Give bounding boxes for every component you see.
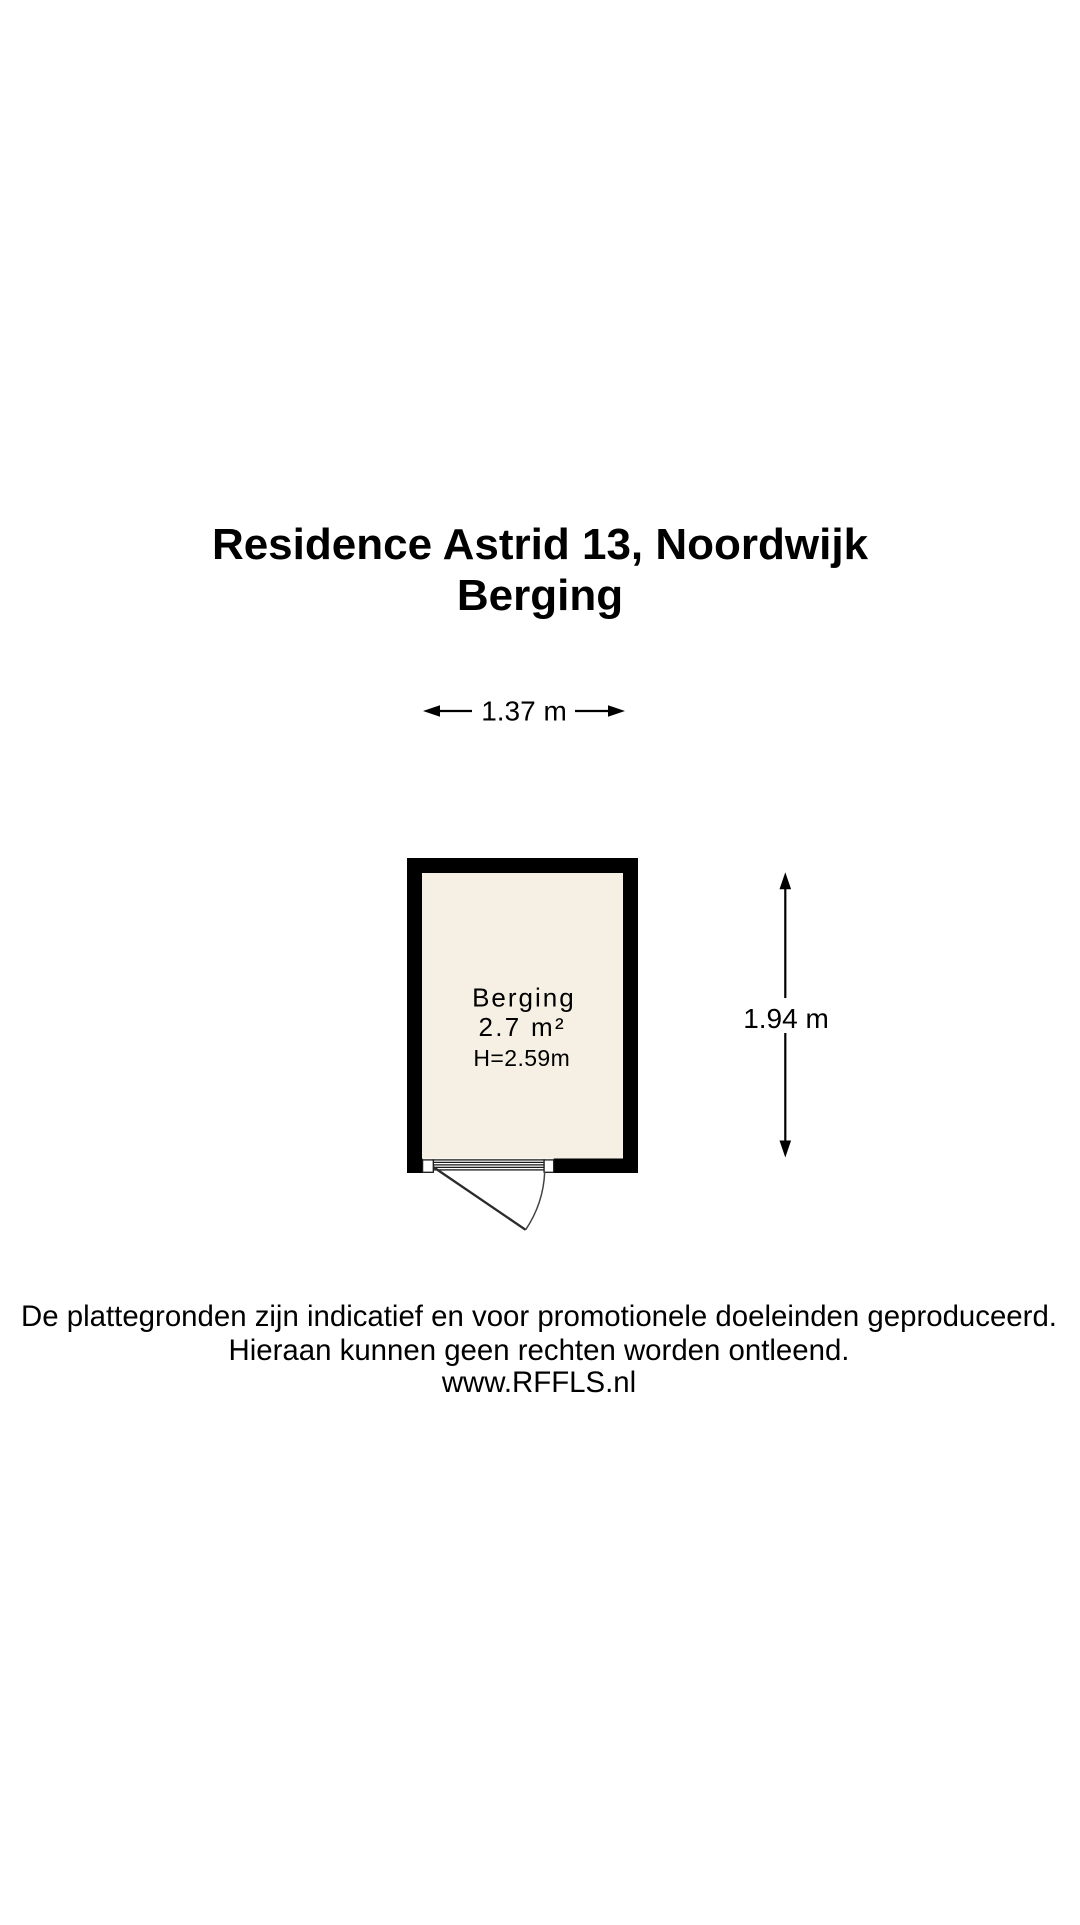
svg-text:www.RFFLS.nl: www.RFFLS.nl [441, 1366, 636, 1399]
svg-text:De plattegronden zijn indicati: De plattegronden zijn indicatief en voor… [21, 1300, 1057, 1333]
svg-text:1.37 m: 1.37 m [481, 696, 567, 727]
svg-text:H=2.59m: H=2.59m [473, 1045, 570, 1071]
svg-text:Residence Astrid 13, Noordwijk: Residence Astrid 13, Noordwijk [212, 520, 869, 569]
svg-text:Hieraan kunnen geen rechten wo: Hieraan kunnen geen rechten worden ontle… [229, 1334, 850, 1367]
svg-text:Berging: Berging [457, 571, 623, 620]
svg-text:2.7 m²: 2.7 m² [478, 1012, 565, 1042]
svg-text:Berging: Berging [472, 983, 576, 1013]
svg-text:1.94 m: 1.94 m [743, 1003, 829, 1034]
